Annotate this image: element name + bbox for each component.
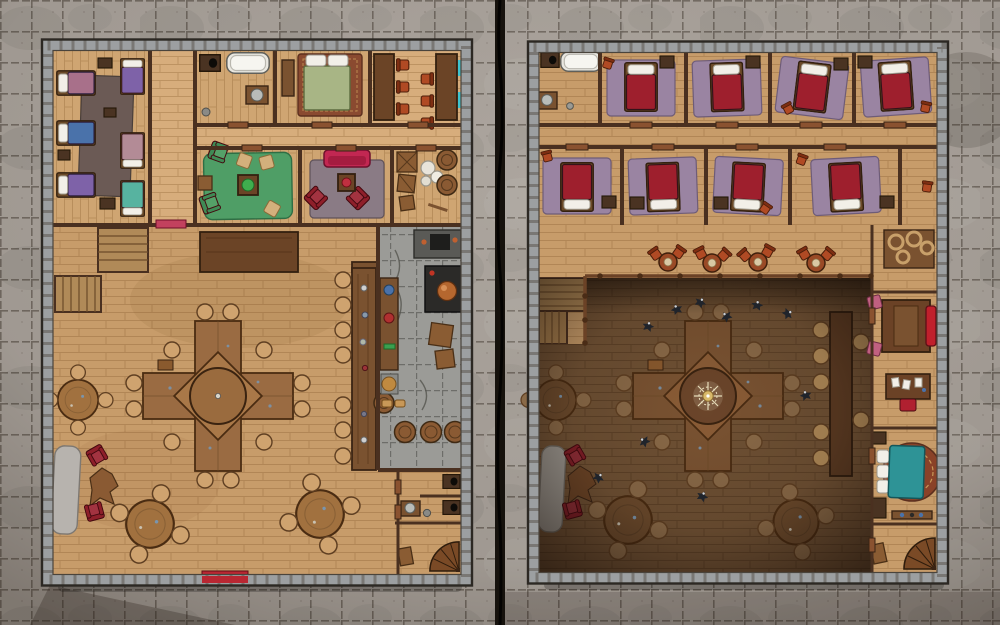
corridor-floor — [150, 50, 195, 225]
battle-map-stage — [0, 0, 1000, 625]
stove-knob — [429, 270, 434, 275]
dining-chair — [397, 59, 409, 71]
dining-table-left — [374, 54, 394, 120]
crate — [435, 349, 455, 369]
bread-loaf — [382, 400, 392, 407]
red-centerpiece — [342, 178, 351, 187]
dining-chair — [397, 103, 409, 115]
bathtub — [227, 53, 269, 73]
nightstand — [58, 150, 70, 160]
barrel — [437, 175, 457, 195]
bucket — [567, 103, 574, 110]
atrium-shadow — [539, 278, 872, 572]
bed-mauve — [57, 71, 95, 95]
nightstand — [660, 56, 674, 68]
nightstand — [104, 108, 116, 117]
nightstand — [100, 198, 115, 209]
bed-blue — [57, 121, 95, 145]
fur-rug — [51, 445, 82, 534]
privy-stall-1 — [443, 475, 460, 489]
hearth-box — [430, 234, 450, 250]
sofa-seat — [328, 156, 366, 165]
bench — [282, 60, 294, 96]
bed-teal — [121, 181, 145, 217]
privy — [200, 55, 221, 72]
copper-pot — [438, 282, 457, 301]
bed-purple-2 — [121, 59, 145, 95]
bread-loaf — [395, 400, 405, 407]
nightstand — [858, 56, 872, 68]
pillow — [306, 55, 326, 66]
green-bed-blanket — [304, 66, 350, 110]
green-lounge — [198, 140, 293, 219]
ground-floor-panel — [42, 40, 472, 593]
bucket — [202, 108, 210, 116]
dining-table-right — [436, 54, 457, 120]
pink-double-door — [156, 220, 186, 228]
nightstand — [630, 197, 644, 209]
pillow — [328, 55, 348, 66]
upper-floor-panel — [521, 42, 948, 591]
dining-chair — [421, 95, 433, 107]
privy-stall-2 — [443, 501, 460, 515]
red-sofa — [926, 306, 936, 346]
teal-bed — [877, 445, 925, 498]
bathtub — [561, 52, 601, 71]
open-atrium — [521, 278, 872, 572]
wash-basin — [251, 89, 263, 101]
ember — [421, 239, 426, 244]
crate — [429, 323, 454, 348]
inkwell — [922, 388, 926, 392]
chandelier — [693, 381, 723, 411]
dining-chair — [397, 81, 409, 93]
pink-chair — [866, 341, 882, 357]
red-bowl — [384, 313, 394, 323]
crate — [398, 547, 414, 566]
bed-pink — [121, 133, 145, 169]
orange-stool — [921, 181, 933, 193]
guest-room-8-bed — [811, 156, 882, 215]
guest-rooms-second — [541, 150, 933, 216]
bucket — [423, 509, 430, 516]
wash-basin — [405, 503, 415, 513]
potted-plant — [242, 179, 254, 191]
floor-cushion — [259, 154, 275, 170]
office-bed-inner — [894, 306, 918, 346]
desk-chair — [900, 399, 916, 411]
kitchen-barrels — [395, 422, 466, 443]
staircase-lower — [55, 276, 101, 312]
red-lounge — [303, 150, 384, 218]
dresser — [872, 432, 886, 444]
privy — [541, 53, 559, 68]
nightstand — [880, 196, 894, 208]
nightstand — [746, 56, 760, 68]
doormat-on-threshold — [202, 576, 248, 583]
nightstand — [602, 196, 616, 208]
pot-highlight — [441, 285, 447, 291]
nightstand — [98, 58, 112, 68]
ember — [452, 237, 457, 242]
small-crate — [198, 176, 212, 190]
crates — [397, 152, 417, 211]
herbs — [384, 344, 395, 349]
battle-map — [0, 0, 1000, 625]
nightstand — [834, 58, 848, 70]
smudge-bottom-right — [503, 592, 1000, 625]
papers — [902, 380, 910, 390]
wash-basin — [542, 95, 553, 106]
guest-room-5-bed — [543, 158, 611, 214]
blue-bowl — [384, 285, 394, 295]
dining-chair — [421, 73, 433, 85]
flatbread — [382, 377, 396, 391]
papers — [915, 378, 922, 387]
bed-purple — [57, 173, 95, 197]
balcony-cast-shadow — [585, 278, 872, 314]
papers — [891, 377, 899, 387]
barrel — [437, 150, 457, 170]
dresser — [872, 498, 886, 518]
dormitory — [57, 58, 145, 216]
nightstand — [714, 197, 728, 209]
staircase-upper — [98, 228, 148, 272]
